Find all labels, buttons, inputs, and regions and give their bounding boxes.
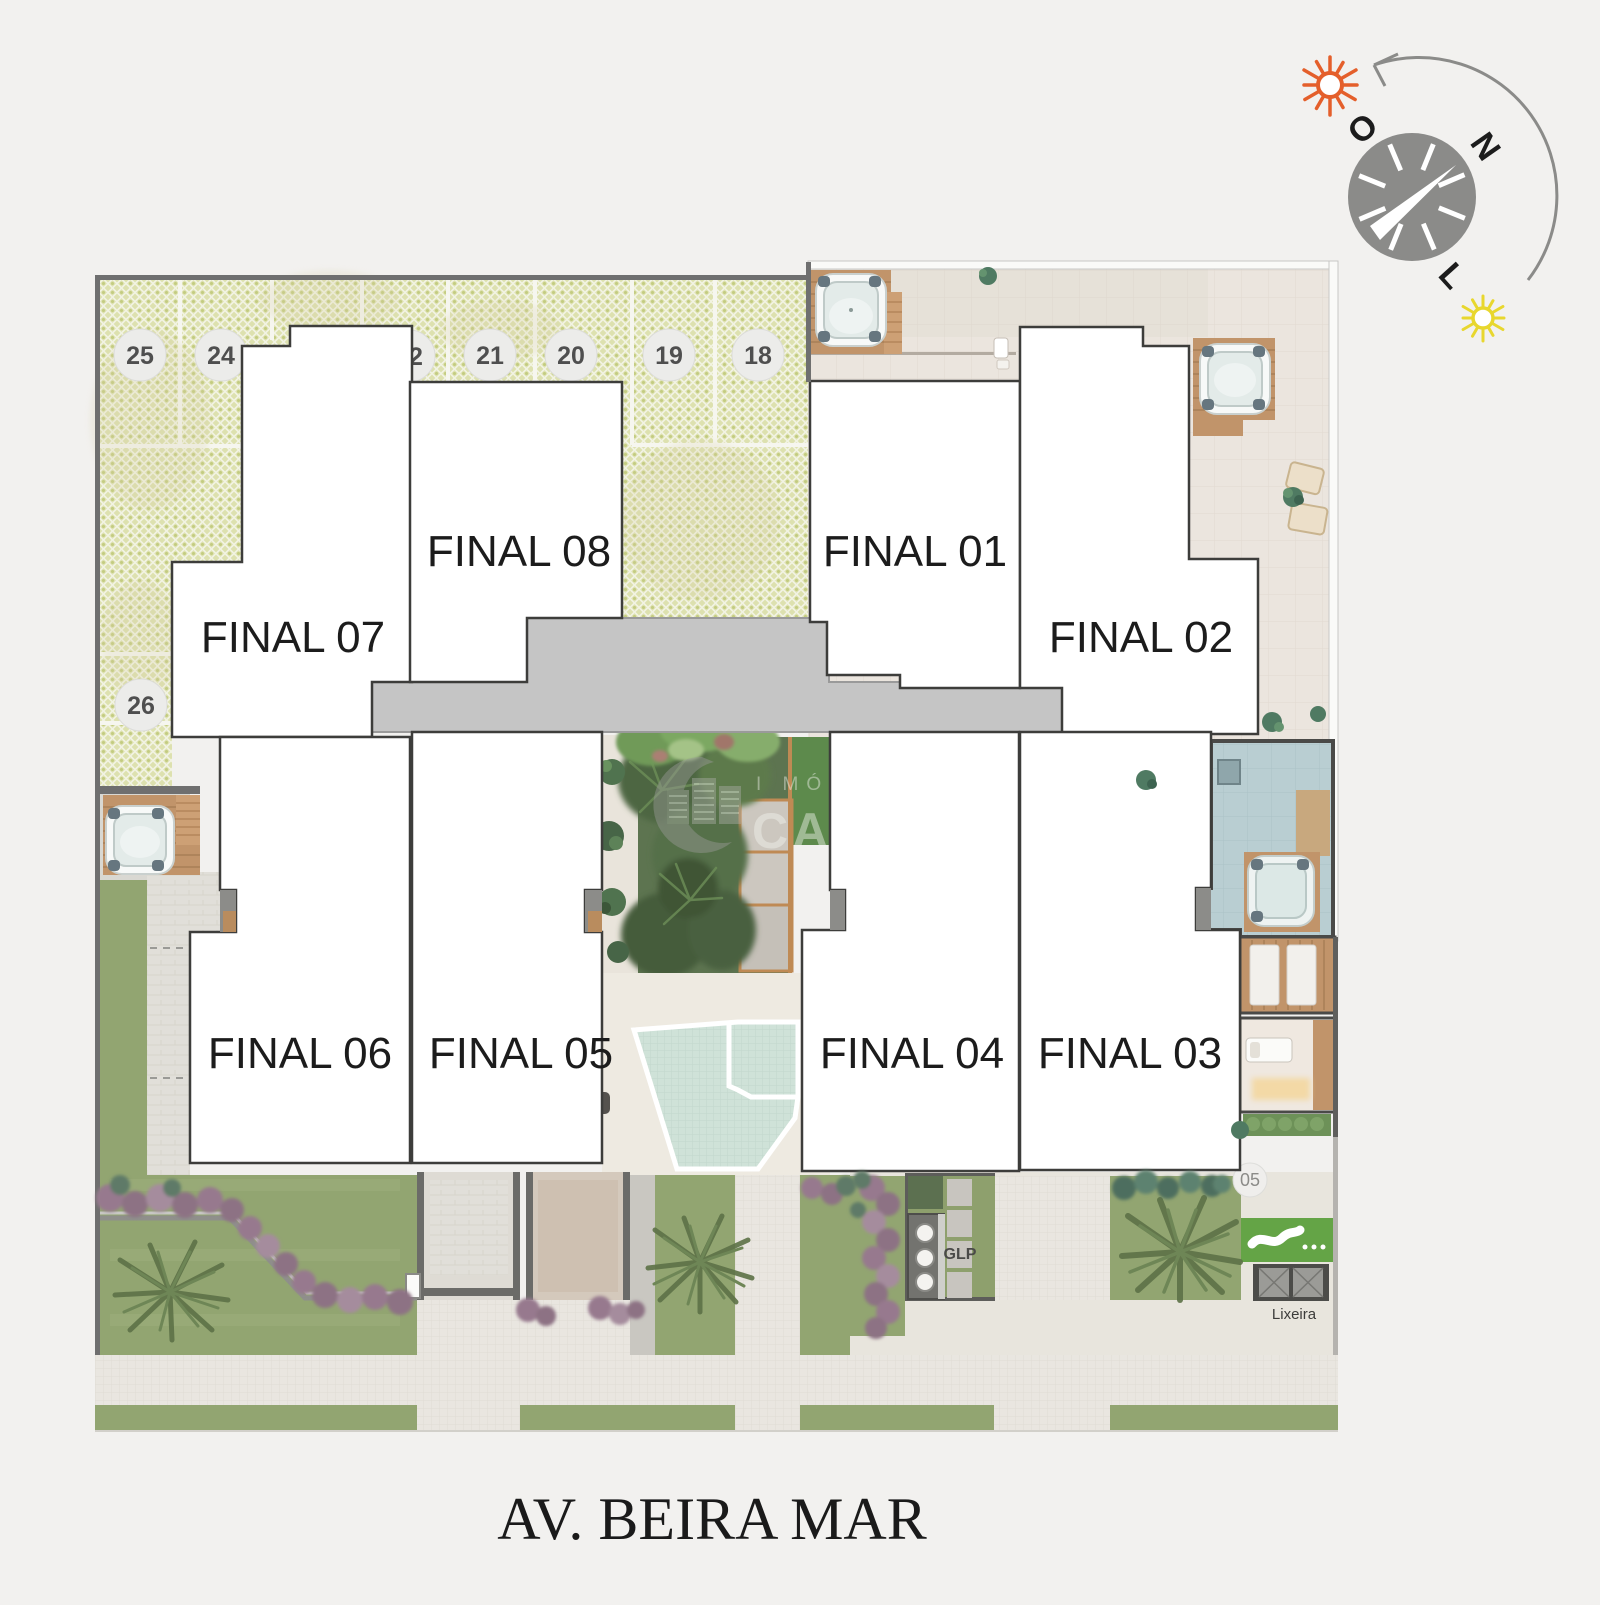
svg-text:FINAL 08: FINAL 08 (427, 527, 611, 576)
svg-text:20: 20 (557, 342, 585, 370)
svg-text:05: 05 (1240, 1170, 1260, 1190)
svg-text:26: 26 (127, 692, 155, 720)
svg-text:FINAL 04: FINAL 04 (820, 1029, 1004, 1078)
svg-text:FINAL 01: FINAL 01 (823, 527, 1007, 576)
svg-text:18: 18 (744, 342, 772, 370)
svg-text:25: 25 (126, 342, 154, 370)
svg-text:AV. BEIRA MAR: AV. BEIRA MAR (497, 1486, 927, 1552)
svg-text:24: 24 (207, 342, 235, 370)
svg-text:FINAL 06: FINAL 06 (208, 1029, 392, 1078)
svg-text:FINAL 05: FINAL 05 (429, 1029, 613, 1078)
svg-text:FINAL 07: FINAL 07 (201, 613, 385, 662)
svg-text:19: 19 (655, 342, 683, 370)
svg-text:GLP: GLP (944, 1246, 977, 1263)
svg-text:FINAL 03: FINAL 03 (1038, 1029, 1222, 1078)
svg-text:CA: CA (752, 803, 832, 859)
svg-text:21: 21 (476, 342, 504, 370)
svg-text:I MÓ: I MÓ (756, 773, 829, 795)
svg-text:Lixeira: Lixeira (1272, 1306, 1317, 1323)
svg-text:FINAL 02: FINAL 02 (1049, 613, 1233, 662)
